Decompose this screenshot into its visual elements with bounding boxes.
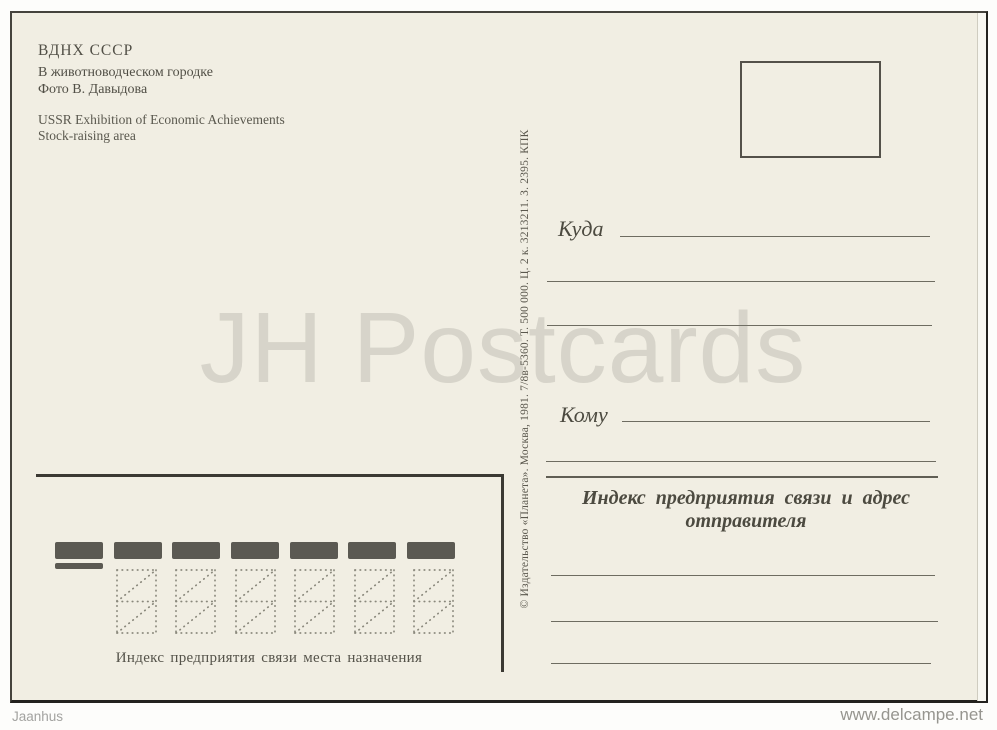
index-bar — [172, 542, 220, 559]
index-bar — [290, 542, 338, 559]
sender-heading-line2: отправителя — [550, 510, 942, 533]
site-url: www.delcampe.net — [840, 705, 983, 725]
index-frame-right — [501, 474, 504, 672]
destination-index-caption: Индекс предприятия связи места назначени… — [36, 650, 502, 667]
sender-line — [551, 663, 931, 664]
to-where-label: Куда — [558, 216, 604, 242]
index-frame-top — [36, 474, 504, 477]
index-bars — [55, 542, 455, 559]
sender-line — [551, 621, 938, 622]
index-bar — [407, 542, 455, 559]
sender-index-heading: Индекс предприятия связи и адрес отправи… — [550, 487, 942, 533]
postal-digit-stencil — [114, 567, 159, 636]
index-bar-small — [55, 563, 103, 569]
postal-code-stencils — [114, 567, 456, 636]
header-block: ВДНХ СССР В животноводческом городке Фот… — [38, 42, 285, 143]
sender-line — [551, 575, 935, 576]
index-bar — [231, 542, 279, 559]
postal-digit-stencil — [411, 567, 456, 636]
caption-russian: В животноводческом городке — [38, 65, 285, 82]
index-bar — [348, 542, 396, 559]
address-line — [620, 236, 930, 237]
address-line — [546, 461, 936, 462]
postal-digit-stencil — [352, 567, 397, 636]
seller-name: Jaanhus — [12, 709, 63, 724]
card-right-edge — [977, 13, 986, 701]
postal-digit-stencil — [173, 567, 218, 636]
address-line — [547, 281, 935, 282]
address-line — [622, 421, 930, 422]
photo-credit: Фото В. Давыдова — [38, 82, 285, 99]
postal-digit-stencil — [233, 567, 278, 636]
postal-digit-stencil — [292, 567, 337, 636]
sender-heading-line1: Индекс предприятия связи и адрес — [550, 487, 942, 510]
address-divider-line — [546, 476, 938, 478]
index-bar — [114, 542, 162, 559]
stamp-box — [740, 61, 881, 158]
title-russian: ВДНХ СССР — [38, 42, 285, 60]
postcard-scan: ВДНХ СССР В животноводческом городке Фот… — [0, 0, 997, 730]
index-bar — [55, 542, 103, 559]
caption-english: Stock-raising area — [38, 128, 285, 144]
watermark-text: JH Postcards — [48, 291, 958, 406]
title-english: USSR Exhibition of Economic Achievements — [38, 112, 285, 128]
